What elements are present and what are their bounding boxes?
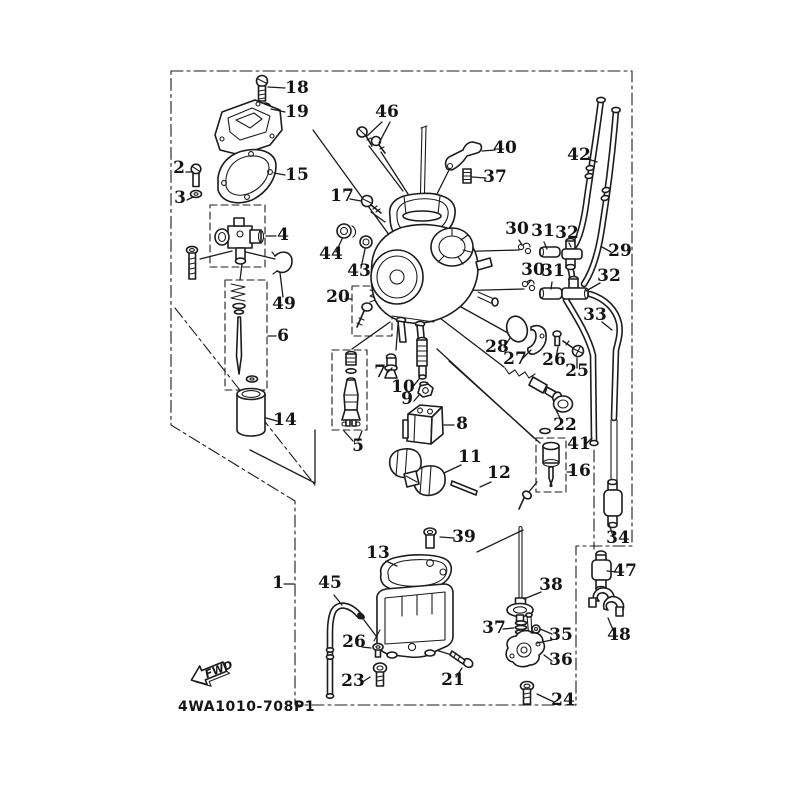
pilot-jet-set-5 xyxy=(342,352,360,427)
part-label-35: 35 xyxy=(549,625,573,645)
part-label-34: 34 xyxy=(606,528,630,548)
leader-line-18 xyxy=(268,87,285,88)
part-label-32: 32 xyxy=(555,223,579,243)
clip-30a xyxy=(518,243,530,253)
part-label-23: 23 xyxy=(341,671,365,691)
parts-diagram-canvas: FWD 4WA1010-708P1 1819231544946174443204… xyxy=(0,0,800,800)
part-label-29: 29 xyxy=(608,241,632,261)
part-label-47: 47 xyxy=(613,561,637,581)
needle-jet-7 xyxy=(385,354,397,378)
part-label-16: 16 xyxy=(567,461,591,481)
part-label-24: 24 xyxy=(551,690,575,710)
part-label-21: 21 xyxy=(441,670,465,690)
spring-37-top xyxy=(463,169,471,183)
part-label-7: 7 xyxy=(374,362,386,382)
venturi-bore xyxy=(371,250,423,304)
part-label-32: 32 xyxy=(597,266,621,286)
part-label-2: 2 xyxy=(173,158,185,178)
part-label-20: 20 xyxy=(326,287,350,307)
pump-rod-group xyxy=(506,527,544,705)
joint-31a xyxy=(540,247,561,257)
top-cover-group xyxy=(187,76,293,437)
part-label-49: 49 xyxy=(272,294,296,314)
screw-26-lower xyxy=(373,644,383,658)
nut-3 xyxy=(191,191,202,198)
float-11 xyxy=(390,449,446,496)
body-port xyxy=(476,258,492,270)
part-label-38: 38 xyxy=(539,575,563,595)
part-label-37: 37 xyxy=(483,167,507,187)
seat-screw xyxy=(519,490,533,509)
cable-lever-40 xyxy=(446,142,482,170)
rod-38 xyxy=(507,527,533,622)
starter-plunger-22 xyxy=(505,368,573,412)
part-label-39: 39 xyxy=(452,527,476,547)
float-chamber-block-8 xyxy=(403,405,443,444)
nut-44 xyxy=(337,224,356,238)
screw-39 xyxy=(424,528,436,548)
gasket-15 xyxy=(218,150,276,203)
clamp-48 xyxy=(589,588,624,616)
part-label-12: 12 xyxy=(487,463,511,483)
part-label-17: 17 xyxy=(330,186,354,206)
part-label-4: 4 xyxy=(277,225,289,245)
leader-line-3 xyxy=(187,197,193,200)
screw-25 xyxy=(563,341,584,357)
float-pin-12 xyxy=(451,481,477,495)
circlip-49 xyxy=(272,252,292,274)
part-label-46: 46 xyxy=(375,102,399,122)
part-label-3: 3 xyxy=(174,188,186,208)
main-jet-10 xyxy=(417,338,427,380)
part-label-37: 37 xyxy=(482,618,506,638)
part-label-25: 25 xyxy=(565,361,589,381)
part-label-30: 30 xyxy=(505,219,529,239)
part-label-9: 9 xyxy=(401,389,413,409)
screw-2 xyxy=(191,164,201,186)
needle-valve-16 xyxy=(540,429,559,488)
cylinder-14 xyxy=(237,389,265,437)
carburetor-parts-diagram-page: FWD 4WA1010-708P1 1819231544946174443204… xyxy=(0,0,800,800)
starter-valve-4 xyxy=(215,218,264,264)
bolt-23 xyxy=(374,663,387,686)
bolt-long-left xyxy=(187,246,198,279)
part-label-26: 26 xyxy=(342,632,366,652)
part-label-42: 42 xyxy=(567,145,591,165)
joint-31b xyxy=(540,288,563,299)
part-label-43: 43 xyxy=(347,261,371,281)
part-label-48: 48 xyxy=(607,625,631,645)
leader-line-9 xyxy=(414,394,420,401)
part-label-22: 22 xyxy=(553,415,577,435)
box-part-6 xyxy=(225,280,267,390)
needle-set-6 xyxy=(231,284,258,382)
diagram-code: 4WA1010-708P1 xyxy=(178,699,315,715)
nut-43 xyxy=(360,236,372,248)
cover-plate xyxy=(215,100,282,155)
leader-line-46 xyxy=(367,122,382,136)
part-label-40: 40 xyxy=(493,138,517,158)
part-label-45: 45 xyxy=(318,573,342,593)
leader-line-46 xyxy=(379,122,390,143)
part-label-13: 13 xyxy=(366,543,390,563)
part-label-31: 31 xyxy=(541,261,565,281)
part-label-18: 18 xyxy=(285,78,309,98)
part-label-6: 6 xyxy=(277,326,289,346)
part-label-19: 19 xyxy=(285,102,309,122)
float-bowl-body xyxy=(374,584,453,658)
carburetor-body xyxy=(371,211,498,347)
part-label-5: 5 xyxy=(352,436,364,456)
screw-18 xyxy=(257,76,268,102)
part-label-26: 26 xyxy=(542,350,566,370)
fuel-filter-34 xyxy=(604,480,622,528)
part-label-31: 31 xyxy=(531,221,555,241)
screw-24 xyxy=(521,682,534,705)
part-label-8: 8 xyxy=(456,414,468,434)
part-label-1: 1 xyxy=(272,573,284,593)
part-label-14: 14 xyxy=(273,410,297,430)
screw-26-upper xyxy=(553,331,561,346)
plug-9 xyxy=(418,382,433,397)
part-label-33: 33 xyxy=(583,305,607,325)
drain-screw-21 xyxy=(450,651,474,669)
part-label-27: 27 xyxy=(503,349,527,369)
part-label-15: 15 xyxy=(285,165,309,185)
part-label-36: 36 xyxy=(549,650,573,670)
fwd-arrow: FWD xyxy=(188,654,237,692)
part-label-11: 11 xyxy=(458,447,482,467)
part-label-44: 44 xyxy=(319,244,343,264)
part-label-41: 41 xyxy=(567,434,591,454)
